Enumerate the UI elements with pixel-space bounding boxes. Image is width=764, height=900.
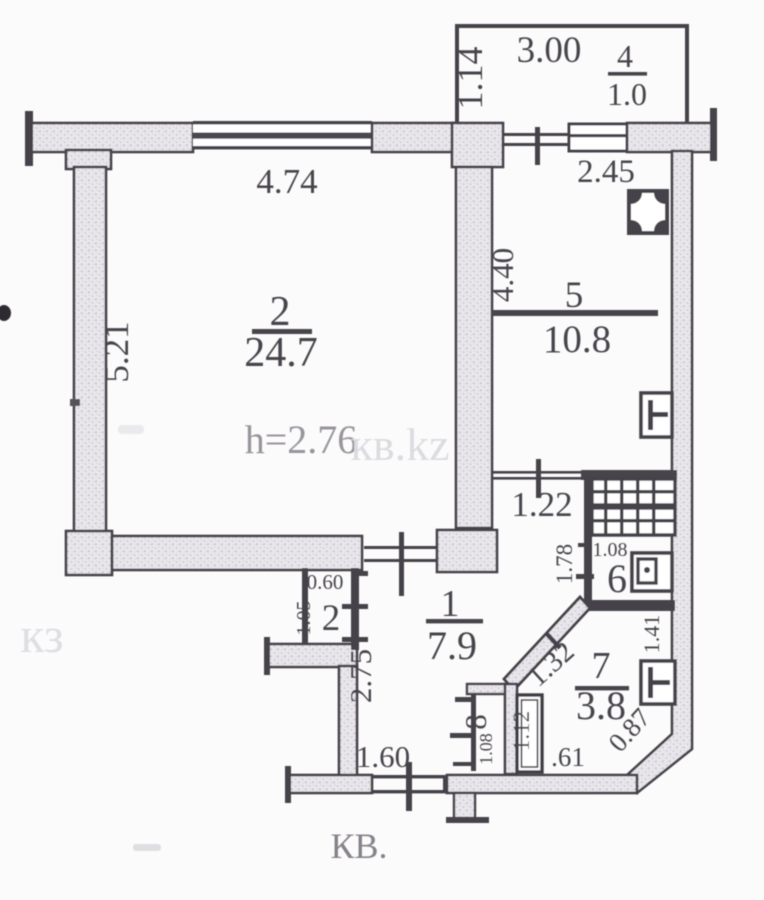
svg-text:1.78: 1.78 [552, 544, 577, 584]
svg-text:8: 8 [458, 714, 493, 730]
svg-text:1.12: 1.12 [509, 711, 534, 751]
svg-text:1: 1 [441, 583, 460, 625]
svg-text:2: 2 [322, 598, 341, 639]
svg-text:0.60: 0.60 [307, 570, 344, 594]
svg-text:.61: .61 [551, 742, 585, 772]
svg-text:4.40: 4.40 [485, 248, 520, 302]
svg-text:кв.kz: кв.kz [351, 419, 450, 470]
svg-text:1.05: 1.05 [293, 601, 315, 636]
svg-text:1.08: 1.08 [476, 733, 496, 765]
svg-text:1.14: 1.14 [450, 47, 490, 110]
svg-text:1.41: 1.41 [639, 615, 664, 654]
svg-text:3.00: 3.00 [517, 30, 582, 71]
svg-text:10.8: 10.8 [543, 318, 611, 361]
svg-text:7: 7 [592, 645, 611, 687]
svg-text:6: 6 [607, 556, 627, 601]
svg-text:КВ.: КВ. [330, 826, 387, 866]
svg-text:h=2.76: h=2.76 [245, 417, 358, 462]
svg-text:7.9: 7.9 [427, 623, 477, 668]
svg-text:2: 2 [270, 289, 291, 335]
svg-text:5: 5 [565, 275, 584, 316]
svg-text:4.74: 4.74 [256, 162, 317, 201]
svg-text:5.21: 5.21 [97, 321, 136, 382]
svg-text:24.7: 24.7 [244, 330, 318, 376]
svg-text:1.60: 1.60 [356, 739, 410, 774]
svg-text:1.0: 1.0 [607, 76, 647, 112]
svg-text:2.75: 2.75 [343, 649, 378, 703]
svg-text:кз: кз [20, 607, 63, 663]
svg-text:4: 4 [617, 38, 633, 74]
svg-text:2.45: 2.45 [577, 154, 635, 190]
svg-text:1.22: 1.22 [511, 485, 572, 524]
svg-text:1.32: 1.32 [521, 635, 580, 693]
